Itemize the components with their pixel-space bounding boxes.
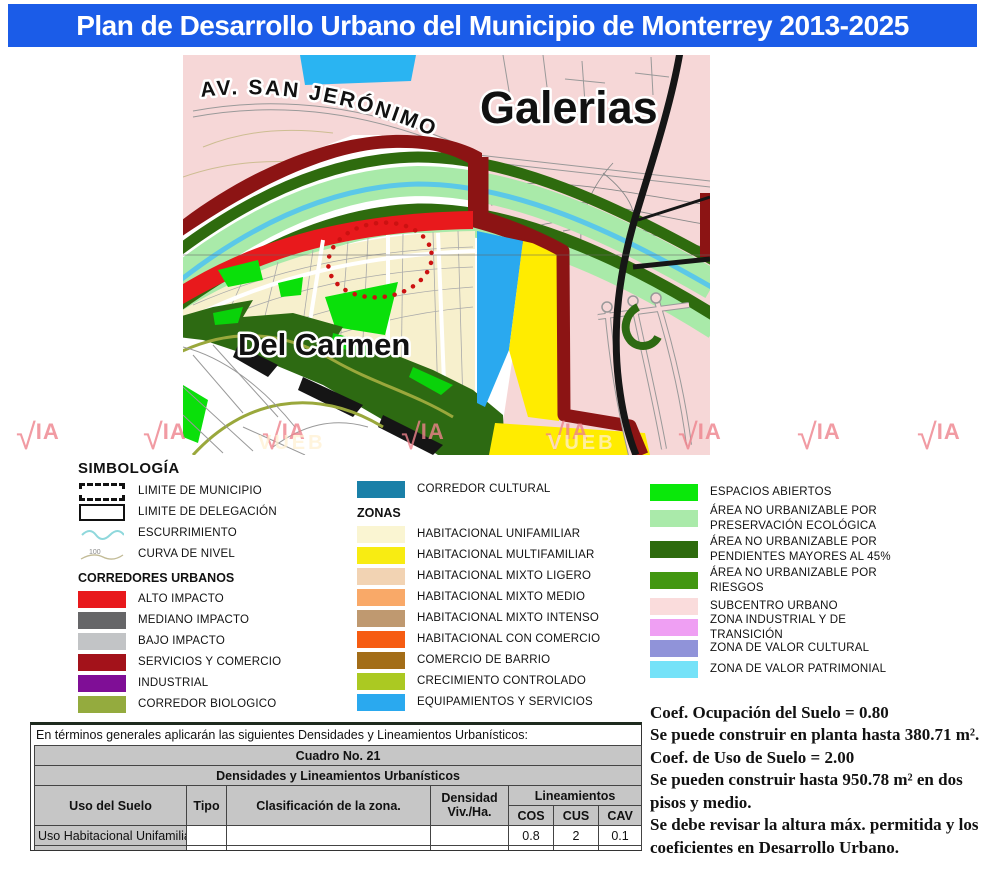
- legend-item: LIMITE DE MUNICIPIO: [78, 481, 343, 502]
- legend-item: CORREDOR BIOLOGICO: [78, 694, 343, 715]
- col-header-cos: COS: [509, 806, 554, 826]
- legend-column-symbols: SIMBOLOGÍA LIMITE DE MUNICIPIO LIMITE DE…: [78, 460, 343, 715]
- zoning-map: AV. SAN JERÓNIMO Galerias Del Carmen: [183, 55, 710, 455]
- legend-item: EQUIPAMIENTOS Y SERVICIOS: [357, 692, 622, 713]
- page: Plan de Desarrollo Urbano del Municipio …: [0, 0, 985, 875]
- col-header-clasificacion: Clasificación de la zona.: [227, 786, 431, 826]
- color-swatch: [357, 526, 405, 543]
- svg-text:100: 100: [89, 549, 101, 556]
- page-title: Plan de Desarrollo Urbano del Municipio …: [76, 10, 909, 42]
- densities-table-box: En términos generales aplicarán las sigu…: [30, 722, 642, 851]
- legend-item: BAJO IMPACTO: [78, 631, 343, 652]
- col-header-uso: Uso del Suelo: [35, 786, 187, 826]
- color-swatch: [357, 568, 405, 585]
- color-swatch: [650, 640, 698, 657]
- color-swatch: [78, 591, 126, 608]
- legend-item: ESCURRIMIENTO: [78, 523, 343, 544]
- legend-item: HABITACIONAL MIXTO LIGERO: [357, 566, 622, 587]
- color-swatch: [650, 572, 698, 589]
- water-patch: [300, 55, 416, 85]
- color-swatch: [78, 654, 126, 671]
- legend-subtitle-zonas: ZONAS: [357, 506, 622, 520]
- municipality-limit-icon: [78, 483, 126, 501]
- galerias-label: Galerias: [480, 82, 658, 133]
- via-watermark-check: √: [797, 416, 817, 457]
- color-swatch: [78, 696, 126, 713]
- via-watermark-check: √: [401, 416, 421, 457]
- via-watermark-check: √: [678, 416, 698, 457]
- table-subtitle-row: Densidades y Lineamientos Urbanísticos: [35, 766, 642, 786]
- legend-item: MEDIANO IMPACTO: [78, 610, 343, 631]
- table-row: Uso Habitacional Unifamiliar 0.8 2 0.1: [35, 826, 642, 846]
- legend-item: COMERCIO DE BARRIO: [357, 650, 622, 671]
- zoning-map-canvas: AV. SAN JERÓNIMO Galerias Del Carmen: [183, 55, 710, 455]
- contour-line-icon: 100: [78, 546, 126, 564]
- legend-item: INDUSTRIAL: [78, 673, 343, 694]
- legend-item: ÁREA NO URBANIZABLE POR PENDIENTES MAYOR…: [650, 534, 915, 565]
- table-header-row: Uso del Suelo Tipo Clasificación de la z…: [35, 786, 642, 806]
- legend-item: ÁREA NO URBANIZABLE POR RIESGOS: [650, 565, 915, 596]
- col-header-cus: CUS: [554, 806, 599, 826]
- color-swatch: [650, 541, 698, 558]
- legend-item: ESPACIOS ABIERTOS: [650, 482, 915, 503]
- via-watermark: √IA: [16, 416, 60, 458]
- table-title: Cuadro No. 21: [35, 746, 642, 766]
- table-intro-text: En términos generales aplicarán las sigu…: [34, 727, 638, 745]
- cell-cav: 0.1: [599, 826, 642, 846]
- del-carmen-label: Del Carmen: [238, 327, 410, 362]
- legend-item: 100 CURVA DE NIVEL: [78, 544, 343, 565]
- cell-tipo: [187, 826, 227, 846]
- color-swatch: [357, 589, 405, 606]
- note-line: Coef. de Uso de Suelo = 2.00: [650, 747, 982, 769]
- legend-item: CORREDOR CULTURAL: [357, 479, 622, 500]
- stream-icon: [78, 525, 126, 543]
- legend-item: HABITACIONAL MULTIFAMILIAR: [357, 545, 622, 566]
- delegation-border-right: [700, 193, 710, 257]
- table-row-partial: [35, 846, 642, 851]
- legend-item: HABITACIONAL MIXTO INTENSO: [357, 608, 622, 629]
- color-swatch: [650, 598, 698, 615]
- color-swatch: [650, 661, 698, 678]
- col-header-densidad: Densidad Viv./Ha.: [431, 786, 509, 826]
- via-watermark-check: √: [143, 416, 163, 457]
- document-title-bar: Plan de Desarrollo Urbano del Municipio …: [8, 4, 977, 47]
- watermark-fragment: VUEB: [258, 432, 326, 455]
- legend-column-areas: ESPACIOS ABIERTOS ÁREA NO URBANIZABLE PO…: [650, 482, 915, 680]
- via-watermark: √IA: [797, 416, 841, 458]
- legend-item: ZONA DE VALOR PATRIMONIAL: [650, 659, 915, 680]
- table-subtitle: Densidades y Lineamientos Urbanísticos: [35, 766, 642, 786]
- note-line: Se puede construir en planta hasta 380.7…: [650, 724, 982, 746]
- color-swatch: [357, 610, 405, 627]
- color-swatch: [357, 481, 405, 498]
- via-watermark-check: √: [917, 416, 937, 457]
- legend-item: HABITACIONAL MIXTO MEDIO: [357, 587, 622, 608]
- col-header-lineamientos: Lineamientos: [509, 786, 642, 806]
- col-header-tipo: Tipo: [187, 786, 227, 826]
- color-swatch: [650, 619, 698, 636]
- note-line: Se debe revisar la altura máx. permitida…: [650, 814, 982, 859]
- color-swatch: [357, 547, 405, 564]
- color-swatch: [78, 675, 126, 692]
- cell-uso: Uso Habitacional Unifamiliar: [35, 826, 187, 846]
- color-swatch: [357, 652, 405, 669]
- table-title-row: Cuadro No. 21: [35, 746, 642, 766]
- via-watermark-check: √: [16, 416, 36, 457]
- legend-item: ALTO IMPACTO: [78, 589, 343, 610]
- cell-clasificacion: [227, 826, 431, 846]
- note-line: Coef. Ocupación del Suelo = 0.80: [650, 702, 982, 724]
- via-watermark: √IA: [917, 416, 961, 458]
- color-swatch: [650, 484, 698, 501]
- legend-item: HABITACIONAL UNIFAMILIAR: [357, 524, 622, 545]
- color-swatch: [650, 510, 698, 527]
- color-swatch: [357, 631, 405, 648]
- color-swatch: [357, 694, 405, 711]
- cell-cus: 2: [554, 826, 599, 846]
- watermark-fragment: VUEB: [548, 432, 616, 455]
- legend-item: LIMITE DE DELEGACIÓN: [78, 502, 343, 523]
- zoning-notes: Coef. Ocupación del Suelo = 0.80 Se pued…: [650, 702, 982, 859]
- cell-densidad: [431, 826, 509, 846]
- legend-item: SERVICIOS Y COMERCIO: [78, 652, 343, 673]
- cell-cos: 0.8: [509, 826, 554, 846]
- col-header-cav: CAV: [599, 806, 642, 826]
- via-watermark: √IA: [678, 416, 722, 458]
- legend-subtitle-corredores: CORREDORES URBANOS: [78, 571, 343, 585]
- via-watermark: √IA: [401, 416, 445, 458]
- legend-item: ZONA INDUSTRIAL Y DE TRANSICIÓN: [650, 617, 915, 638]
- legend-item: ZONA DE VALOR CULTURAL: [650, 638, 915, 659]
- color-swatch: [78, 612, 126, 629]
- note-line: Se pueden construir hasta 950.78 m² en d…: [650, 769, 982, 814]
- densities-table: Cuadro No. 21 Densidades y Lineamientos …: [34, 745, 642, 850]
- legend-item: HABITACIONAL CON COMERCIO: [357, 629, 622, 650]
- color-swatch: [78, 633, 126, 650]
- color-swatch: [357, 673, 405, 690]
- via-watermark: √IA: [143, 416, 187, 458]
- legend-title: SIMBOLOGÍA: [78, 460, 343, 477]
- legend-column-zonas: CORREDOR CULTURAL ZONAS HABITACIONAL UNI…: [357, 479, 622, 713]
- delegation-limit-icon: [78, 504, 126, 522]
- legend-item: CRECIMIENTO CONTROLADO: [357, 671, 622, 692]
- legend-item: ÁREA NO URBANIZABLE POR PRESERVACIÓN ECO…: [650, 503, 915, 534]
